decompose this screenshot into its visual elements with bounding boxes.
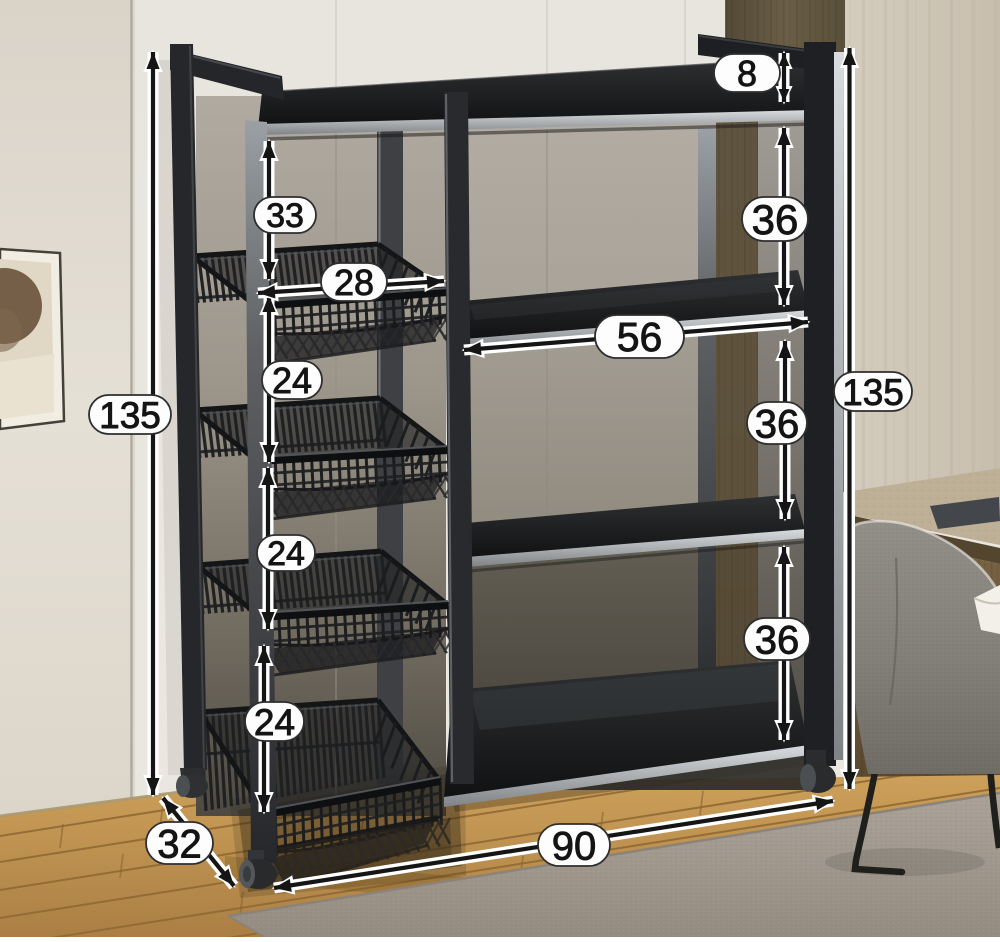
svg-text:8: 8 [737,53,757,94]
svg-text:33: 33 [266,197,304,235]
svg-text:56: 56 [617,314,663,360]
svg-text:135: 135 [99,395,161,436]
svg-text:28: 28 [334,262,374,303]
svg-text:36: 36 [755,402,800,446]
svg-text:24: 24 [267,535,305,573]
svg-text:24: 24 [254,702,295,743]
svg-text:36: 36 [755,618,800,662]
svg-text:135: 135 [842,372,904,413]
svg-text:36: 36 [752,196,799,243]
svg-text:24: 24 [272,360,312,401]
svg-text:90: 90 [552,824,597,868]
svg-text:32: 32 [157,822,202,866]
